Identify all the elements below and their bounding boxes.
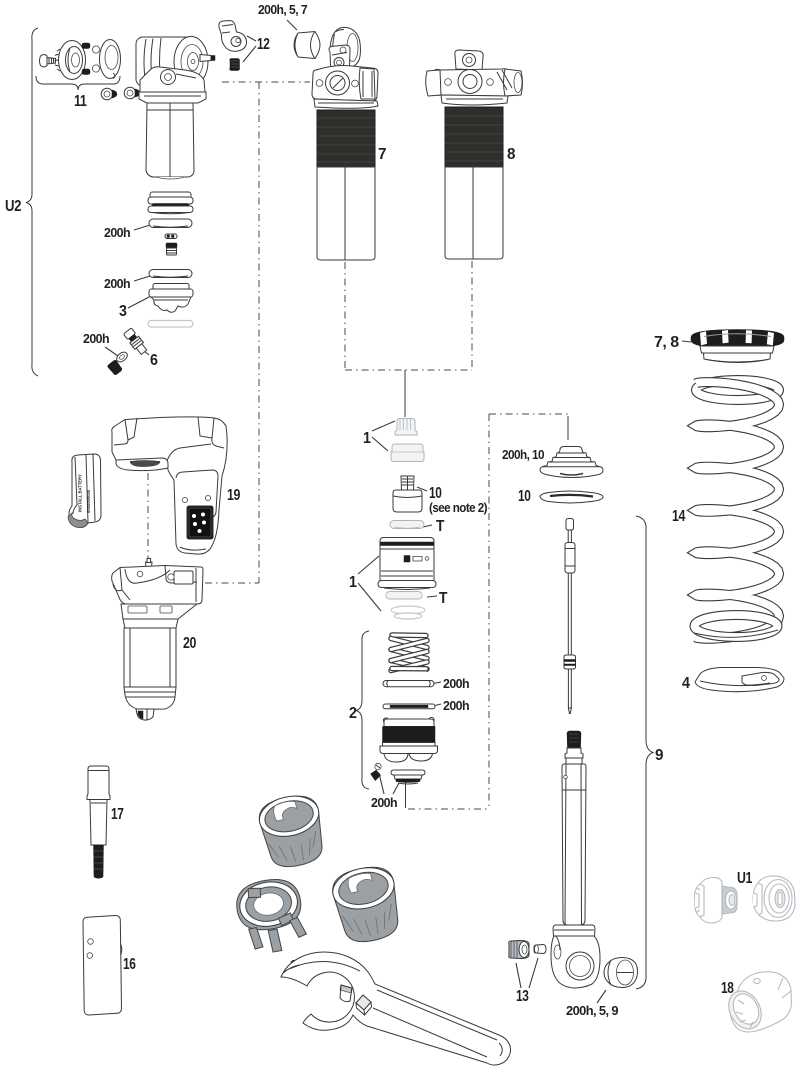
svg-text:200h: 200h [371, 795, 398, 810]
svg-text:3: 3 [119, 303, 127, 320]
svg-text:200h, 5, 9: 200h, 5, 9 [566, 1003, 618, 1018]
svg-text:10: 10 [518, 488, 531, 505]
svg-text:0000000000: 0000000000 [86, 489, 91, 513]
svg-text:19: 19 [227, 487, 240, 504]
svg-text:200h: 200h [443, 698, 470, 713]
svg-text:12: 12 [257, 36, 270, 53]
svg-text:INSTALL BATTERY: INSTALL BATTERY [78, 474, 83, 512]
svg-text:U1: U1 [737, 870, 752, 887]
svg-text:16: 16 [123, 956, 136, 973]
svg-text:7, 8: 7, 8 [654, 334, 679, 351]
svg-text:4: 4 [682, 675, 690, 692]
svg-text:13: 13 [516, 988, 529, 1005]
svg-text:20: 20 [183, 635, 196, 652]
svg-text:200h: 200h [443, 676, 470, 691]
svg-text:17: 17 [111, 806, 124, 823]
svg-text:T: T [436, 518, 445, 535]
svg-text:200h: 200h [104, 276, 131, 291]
svg-text:14: 14 [672, 508, 685, 525]
svg-text:200h, 10: 200h, 10 [502, 447, 544, 462]
svg-text:6: 6 [150, 352, 158, 369]
svg-text:8: 8 [507, 146, 516, 163]
svg-text:7: 7 [378, 146, 387, 163]
svg-text:11: 11 [74, 93, 87, 110]
svg-text:T: T [439, 590, 448, 607]
svg-text:200h: 200h [104, 225, 131, 240]
svg-text:200h: 200h [83, 331, 110, 346]
svg-text:2: 2 [349, 705, 357, 722]
svg-text:9: 9 [655, 747, 664, 764]
svg-text:U2: U2 [5, 198, 21, 215]
svg-text:1: 1 [363, 430, 371, 447]
svg-text:200h, 5, 7: 200h, 5, 7 [258, 2, 307, 17]
svg-text:(see note 2): (see note 2) [429, 500, 487, 515]
svg-text:1: 1 [349, 574, 357, 591]
